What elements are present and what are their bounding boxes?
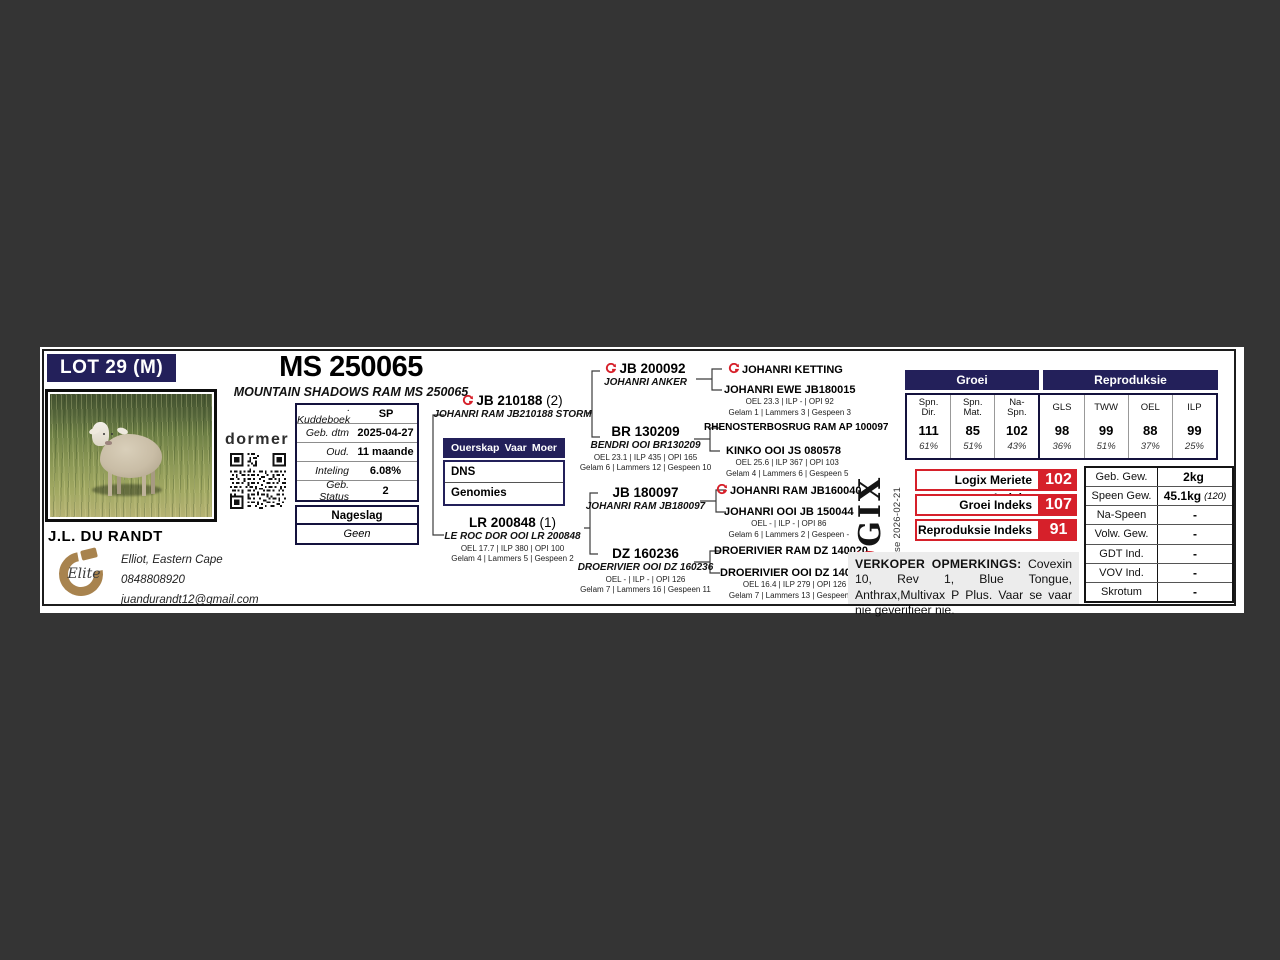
nageslag-header: Nageslag: [297, 507, 417, 525]
pedigree-gen3-3: RHENOSTERBOSRUG RAM AP 100097: [704, 422, 889, 433]
nageslag-value: Geen: [297, 525, 417, 543]
pedigree-gen3-5: JOHANRI RAM JB160040: [716, 484, 861, 497]
table-row: Speen Gew. 45.1kg(120): [1086, 487, 1232, 506]
ebv-table: Spn.Dir. 111 61% Spn.Mat. 85 51% Na-Spn.…: [905, 393, 1218, 460]
index-boxes: Logix Meriete Indeks 102 Groei Indeks 10…: [915, 469, 1077, 544]
pedigree-gen3-8: DROERIVIER OOI DZ 140159 OEL 16.4 | ILP …: [720, 567, 869, 600]
pedigree-gen3-4: KINKO OOI JS 080578 OEL 25.6 | ILP 367 |…: [726, 445, 848, 478]
ouerskap-col-vaar: Vaar: [505, 442, 527, 454]
table-row: Na-Speen -: [1086, 506, 1232, 525]
pedigree-gen3-1: JOHANRI KETTING: [728, 363, 843, 376]
seller-name: J.L. DU RANDT: [48, 528, 163, 545]
index-row-groei: Groei Indeks 107: [915, 494, 1077, 516]
pedigree-gen3-6: JOHANRI OOI JB 150044 OEL - | ILP - | OP…: [724, 506, 854, 539]
table-row: Oud. 11 maande: [297, 443, 417, 462]
ebv-col-spn-dir: Spn.Dir. 111 61%: [907, 395, 951, 458]
ouerskap-title: Ouerskap: [451, 442, 499, 454]
ouerskap-col-moer: Moer: [532, 442, 557, 454]
genomic-test-icon: [462, 394, 473, 405]
page-title: MS 250065: [186, 351, 516, 384]
genomic-test-icon: [728, 363, 739, 374]
seller-remarks: VERKOPER OPMERKINGS: Covexin 10, Rev 1, …: [848, 552, 1079, 604]
table-row: GDT Ind. -: [1086, 545, 1232, 564]
sire-suffix: (2): [546, 393, 563, 408]
sire-name: JOHANRI RAM JB210188 STORM: [420, 409, 605, 420]
ebv-group-groei: Groei: [905, 370, 1039, 390]
ebv-col-tww: TWW 99 51%: [1085, 395, 1129, 458]
ouerskap-header: Ouerskap Vaar Moer: [443, 438, 565, 458]
dormer-logo: dormer: [224, 431, 290, 449]
table-row: Geb. Gew. 2kg: [1086, 468, 1232, 487]
elite-label: Elite: [62, 566, 106, 582]
seller-phone: 0848808920: [121, 570, 259, 590]
ebv-col-oel: OEL 88 37%: [1129, 395, 1173, 458]
detail-label: Geb. dtm: [297, 427, 354, 439]
ouerskap-row-dns: DNS: [445, 462, 563, 483]
seller-location: Elliot, Eastern Cape: [121, 550, 259, 570]
table-row: . Kuddeboek SP: [297, 405, 417, 424]
detail-label: . Kuddeboek: [297, 402, 355, 426]
sheep-illustration: [84, 420, 170, 504]
detail-label: Inteling: [297, 465, 354, 477]
pedigree-gen2-3: JB 180097 JOHANRI RAM JB180097: [563, 485, 728, 512]
catalog-card: LOT 29 (M) MS 250065 MOUNTAIN SHADOWS RA…: [40, 347, 1244, 613]
table-row: Geb. dtm 2025-04-27: [297, 424, 417, 443]
dam-id: LR 200848: [469, 515, 536, 530]
ram-photo: [45, 389, 217, 522]
lot-badge: LOT 29 (M): [47, 354, 176, 382]
pedigree-gen2-1: JB 200092 JOHANRI ANKER: [563, 361, 728, 388]
pedigree-gen3-7: DROERIVIER RAM DZ 140020: [714, 545, 868, 557]
table-row: Volw. Gew. -: [1086, 525, 1232, 544]
seller-contact: Elliot, Eastern Cape 0848808920 juandura…: [121, 550, 259, 610]
detail-value: 2: [354, 485, 417, 497]
dam-suffix: (1): [540, 515, 557, 530]
ram-photo-scene: [50, 394, 212, 517]
ebv-col-ilp: ILP 99 25%: [1173, 395, 1216, 458]
ebv-col-na-spn: Na-Spn. 102 43%: [995, 395, 1040, 458]
remarks-heading: VERKOPER OPMERKINGS:: [855, 557, 1021, 571]
pedigree-gen2-4: DZ 160236 DROERIVIER OOI DZ 160236 OEL -…: [563, 546, 728, 594]
elite-brand-icon: Elite: [54, 548, 108, 602]
ouerskap-table: DNS Genomies: [443, 460, 565, 506]
dam-name: LE ROC DOR OOI LR 200848: [420, 531, 605, 542]
detail-value: SP: [355, 408, 417, 420]
sire-id: JB 210188: [476, 393, 542, 408]
detail-value: 11 maande: [354, 446, 417, 458]
pedigree-gen3-2: JOHANRI EWE JB180015 OEL 23.3 | ILP - | …: [724, 384, 855, 417]
pedigree-sire: JB 210188 (2) JOHANRI RAM JB210188 STORM: [420, 393, 605, 420]
table-row: Skrotum -: [1086, 583, 1232, 601]
qr-code: [230, 452, 286, 510]
weights-table: Geb. Gew. 2kg Speen Gew. 45.1kg(120) Na-…: [1084, 466, 1234, 603]
animal-details-table: . Kuddeboek SP Geb. dtm 2025-04-27 Oud. …: [295, 403, 419, 502]
viewer-background: LOT 29 (M) MS 250065 MOUNTAIN SHADOWS RA…: [0, 0, 1280, 960]
table-row: Geb. Status 2: [297, 481, 417, 500]
detail-label: Oud.: [297, 446, 354, 458]
ebv-group-reproduksie: Reproduksie: [1043, 370, 1218, 390]
genomic-test-icon: [716, 484, 727, 495]
ebv-col-spn-mat: Spn.Mat. 85 51%: [951, 395, 995, 458]
nageslag-table: Nageslag Geen: [295, 505, 419, 545]
lot-label: LOT 29 (M): [60, 357, 163, 378]
index-row-reproduksie: Reproduksie Indeks 91: [915, 519, 1077, 541]
ouerskap-row-genomies: Genomies: [445, 483, 563, 504]
genomic-test-icon: [605, 362, 616, 373]
detail-value: 2025-04-27: [354, 427, 417, 439]
detail-value: 6.08%: [354, 465, 417, 477]
ebv-col-gls: GLS 98 36%: [1040, 395, 1084, 458]
qr-code-graphic: [230, 452, 286, 510]
detail-label: Geb. Status: [297, 479, 354, 503]
table-row: VOV Ind. -: [1086, 564, 1232, 583]
seller-email: juandurandt12@gmail.com: [121, 590, 259, 610]
index-row-meriete: Logix Meriete Indeks 102: [915, 469, 1077, 491]
